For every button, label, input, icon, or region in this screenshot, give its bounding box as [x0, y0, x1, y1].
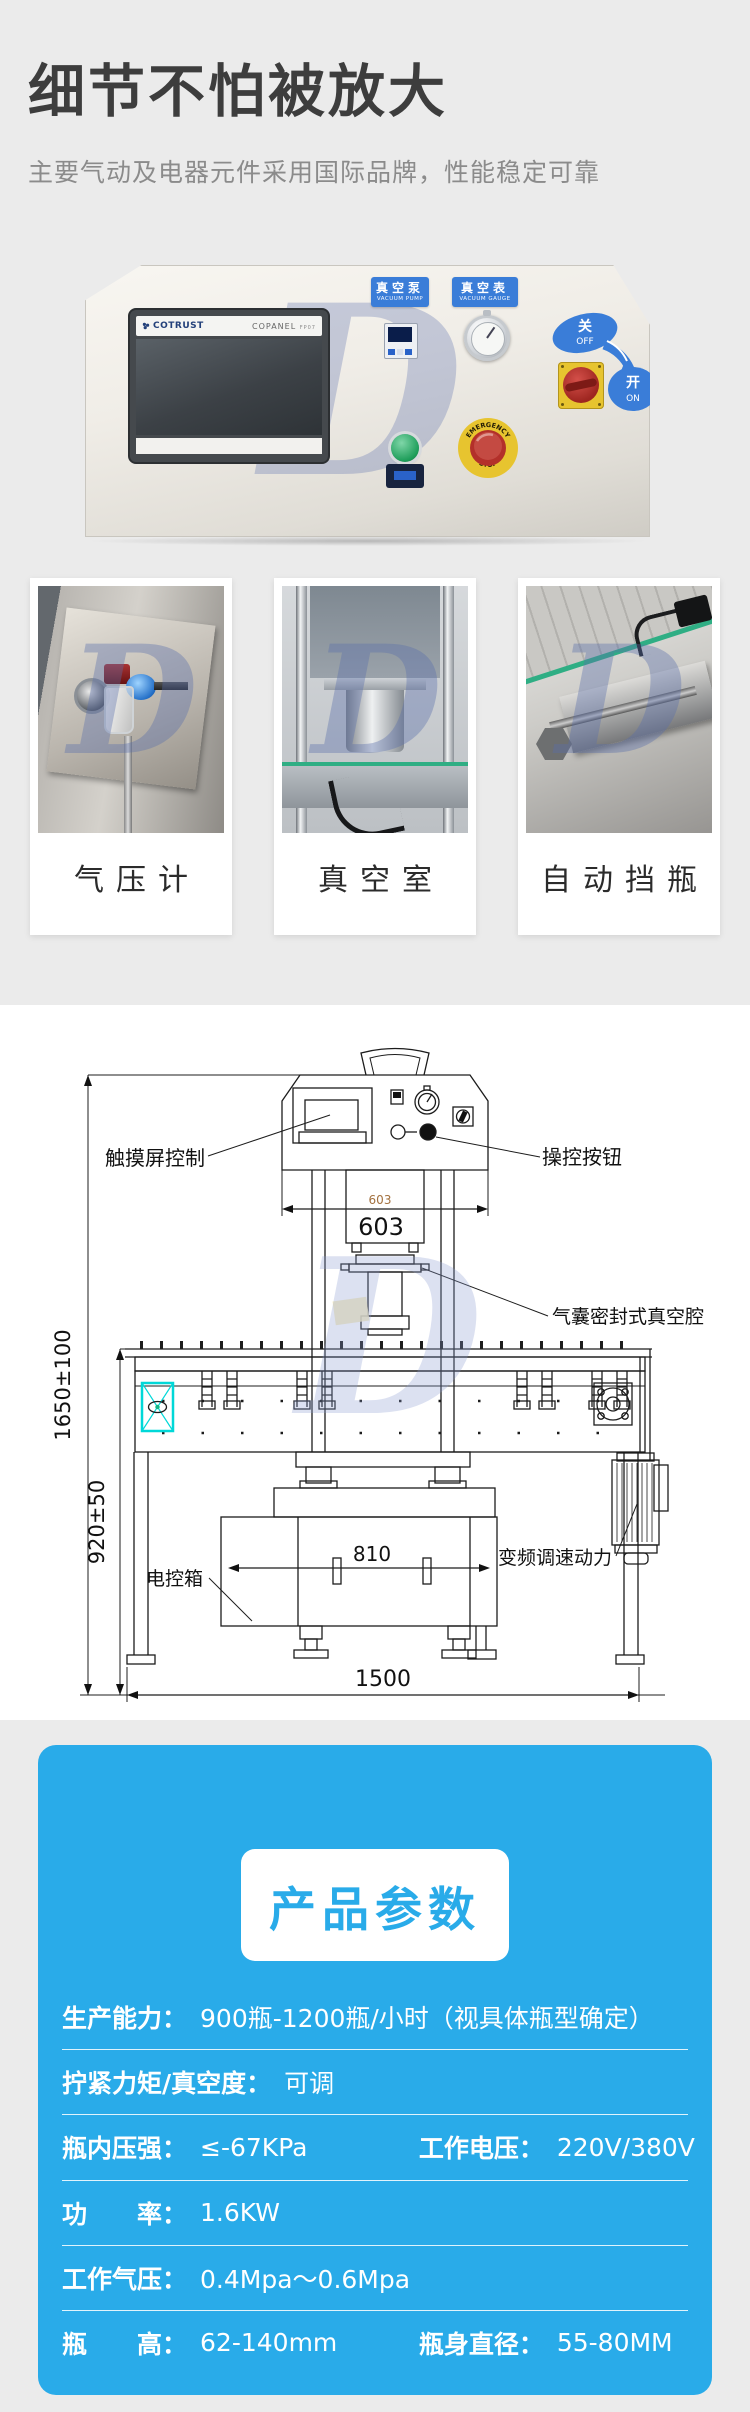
- conveyor-height-dim: 920±50: [85, 1480, 109, 1564]
- cotrust-logo-icon: [142, 322, 150, 330]
- digital-display-screen: [388, 327, 412, 342]
- card-caption: 自动挡瓶: [518, 833, 720, 935]
- param-value: 220V/380V: [557, 2133, 695, 2162]
- on-label-cn: 开: [626, 375, 640, 391]
- touchscreen: COTRUST COPANEL FP07: [128, 308, 330, 464]
- head-width-dim: 603: [358, 1213, 404, 1241]
- technical-drawing: D 触摸屏控制 操控按钮 603 603 气囊密封式真空腔 电控箱 810 变频…: [0, 1005, 750, 1720]
- page-title: 细节不怕被放大: [28, 46, 448, 128]
- param-row-torque: 拧紧力矩/真空度： 可调: [62, 2050, 688, 2115]
- brand-watermark: D: [291, 1211, 483, 1464]
- param-value: 可调: [284, 2064, 334, 2100]
- param-label: 生产能力：: [62, 1999, 187, 2035]
- analog-vacuum-gauge-icon: [464, 315, 510, 361]
- emergency-stop-button: EMERGENCY STOP: [457, 417, 519, 479]
- param-row-capacity: 生产能力： 900瓶-1200瓶/小时（视具体瓶型确定）: [62, 1985, 688, 2050]
- on-label-en: ON: [626, 394, 640, 404]
- cabinet-width-dim: 810: [353, 1542, 391, 1566]
- parameters-header: 产品参数: [241, 1849, 509, 1961]
- total-width-dim: 1500: [355, 1667, 411, 1692]
- touchscreen-header: COTRUST COPANEL FP07: [136, 316, 322, 336]
- param-label: 瓶内压强：: [62, 2129, 187, 2165]
- vacuum-gauge-label: 真空表 VACUUM GAUGE: [452, 277, 518, 307]
- touchscreen-display: [136, 339, 322, 435]
- card-caption: 气压计: [30, 833, 232, 935]
- vacuum-chamber-photo: D: [282, 586, 468, 833]
- param-label: 拧紧力矩/真空度：: [62, 2064, 271, 2100]
- param-label: 瓶 高：: [62, 2325, 187, 2361]
- main-power-switch: [558, 362, 604, 409]
- hmi-brand-text: COTRUST: [153, 321, 204, 331]
- param-row-power: 功 率： 1.6KW: [62, 2181, 688, 2246]
- param-label: 瓶身直径：: [419, 2325, 544, 2361]
- pressure-gauge-photo: D: [38, 586, 224, 833]
- vacuum-chamber-label: 气囊密封式真空腔: [552, 1306, 704, 1328]
- off-label-cn: 关: [578, 318, 592, 335]
- hmi-model-text: COPANEL: [252, 322, 296, 331]
- feature-card-vacuum-chamber: D 真空室: [274, 578, 476, 935]
- off-label-en: OFF: [576, 337, 593, 347]
- total-height-dim: 1650±100: [51, 1329, 75, 1440]
- param-value: 0.4Mpa～0.6Mpa: [200, 2260, 410, 2296]
- param-value: 1.6KW: [200, 2198, 280, 2227]
- param-value: 900瓶-1200瓶/小时（视具体瓶型确定）: [200, 1999, 654, 2035]
- param-value: ≤-67KPa: [200, 2133, 307, 2162]
- technical-drawing-section: D 触摸屏控制 操控按钮 603 603 气囊密封式真空腔 电控箱 810 变频…: [0, 1005, 750, 1720]
- digital-display-buttons: [388, 349, 412, 355]
- param-value: 55-80MM: [557, 2328, 673, 2357]
- touchscreen-reflection: [136, 438, 322, 454]
- digital-pressure-display: [384, 323, 418, 359]
- vacuum-pump-label-en: VACUUM PUMP: [371, 296, 429, 302]
- head-width-dim-small: 603: [369, 1193, 392, 1207]
- card-caption: 真空室: [274, 833, 476, 935]
- param-row-air-pressure: 工作气压： 0.4Mpa～0.6Mpa: [62, 2246, 688, 2311]
- photo-shadow: [85, 536, 650, 546]
- vacuum-pump-label-cn: 真空泵: [371, 279, 429, 296]
- feature-card-pressure-gauge: D 气压计: [30, 578, 232, 935]
- param-col2: 工作电压： 220V/380V: [419, 2129, 695, 2165]
- touchscreen-label: 触摸屏控制: [105, 1146, 205, 1170]
- control-panel-photo: D COTRUST COPANEL FP07 真空泵 VACUUM PUMP 真…: [85, 265, 650, 537]
- vacuum-gauge-label-cn: 真空表: [452, 279, 518, 296]
- param-label: 工作气压：: [62, 2260, 187, 2296]
- start-button: [391, 434, 419, 462]
- motor-label: 变频调速动力: [498, 1547, 612, 1569]
- product-parameters-panel: 产品参数 生产能力： 900瓶-1200瓶/小时（视具体瓶型确定） 拧紧力矩/真…: [38, 1745, 712, 2395]
- param-row-pressure-voltage: 瓶内压强： ≤-67KPa 工作电压： 220V/380V: [62, 2115, 688, 2180]
- feature-card-bottle-stopper: D 自动挡瓶: [518, 578, 720, 935]
- param-value: 62-140mm: [200, 2328, 337, 2357]
- param-row-bottle-size: 瓶 高： 62-140mm 瓶身直径： 55-80MM: [62, 2311, 688, 2375]
- cabinet-label: 电控箱: [146, 1568, 203, 1590]
- parameters-rows: 生产能力： 900瓶-1200瓶/小时（视具体瓶型确定） 拧紧力矩/真空度： 可…: [62, 1985, 688, 2375]
- hmi-model: COPANEL FP07: [252, 322, 316, 331]
- bottle-stopper-photo: D: [526, 586, 712, 833]
- hmi-model-suffix: FP07: [300, 325, 316, 331]
- page-subtitle: 主要气动及电器元件采用国际品牌，性能稳定可靠: [28, 153, 600, 189]
- vacuum-gauge-label-en: VACUUM GAUGE: [452, 296, 518, 302]
- param-label: 功 率：: [62, 2195, 187, 2231]
- vacuum-pump-label: 真空泵 VACUUM PUMP: [371, 277, 429, 307]
- start-button-base: [386, 464, 424, 488]
- product-detail-page: 细节不怕被放大 主要气动及电器元件采用国际品牌，性能稳定可靠 D COTRUST…: [0, 0, 750, 2412]
- control-buttons-label: 操控按钮: [542, 1145, 622, 1169]
- hmi-brand: COTRUST: [142, 321, 204, 331]
- param-col2: 瓶身直径： 55-80MM: [419, 2325, 673, 2361]
- param-label: 工作电压：: [419, 2129, 544, 2165]
